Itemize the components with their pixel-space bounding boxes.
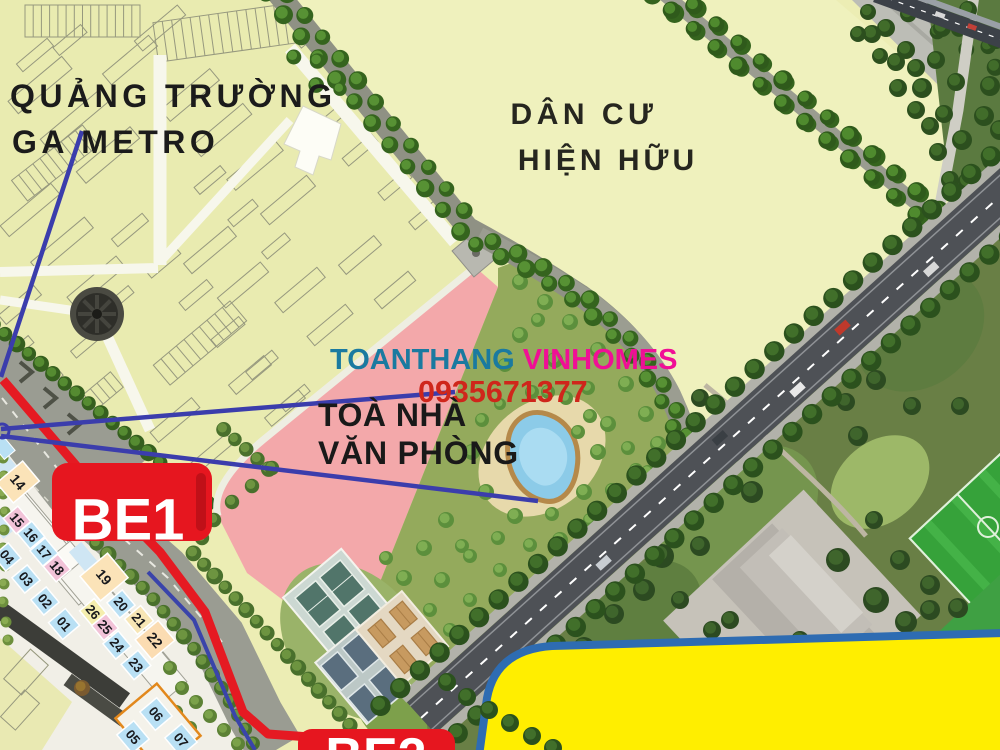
svg-text:TOÀ NHÀ: TOÀ NHÀ bbox=[318, 397, 467, 433]
svg-text:QUẢNG TRƯỜNG: QUẢNG TRƯỜNG bbox=[10, 78, 337, 114]
svg-text:BE1: BE1 bbox=[72, 487, 185, 552]
svg-text:VĂN PHÒNG: VĂN PHÒNG bbox=[318, 435, 519, 471]
svg-text:DÂN CƯ: DÂN CƯ bbox=[511, 97, 658, 131]
svg-text:TOANTHANG VINHOMES: TOANTHANG VINHOMES bbox=[330, 344, 677, 376]
svg-text:GA METRO: GA METRO bbox=[12, 124, 219, 160]
svg-text:HIỆN HỮU: HIỆN HỮU bbox=[518, 143, 698, 177]
svg-text:BE2: BE2 bbox=[325, 728, 426, 750]
